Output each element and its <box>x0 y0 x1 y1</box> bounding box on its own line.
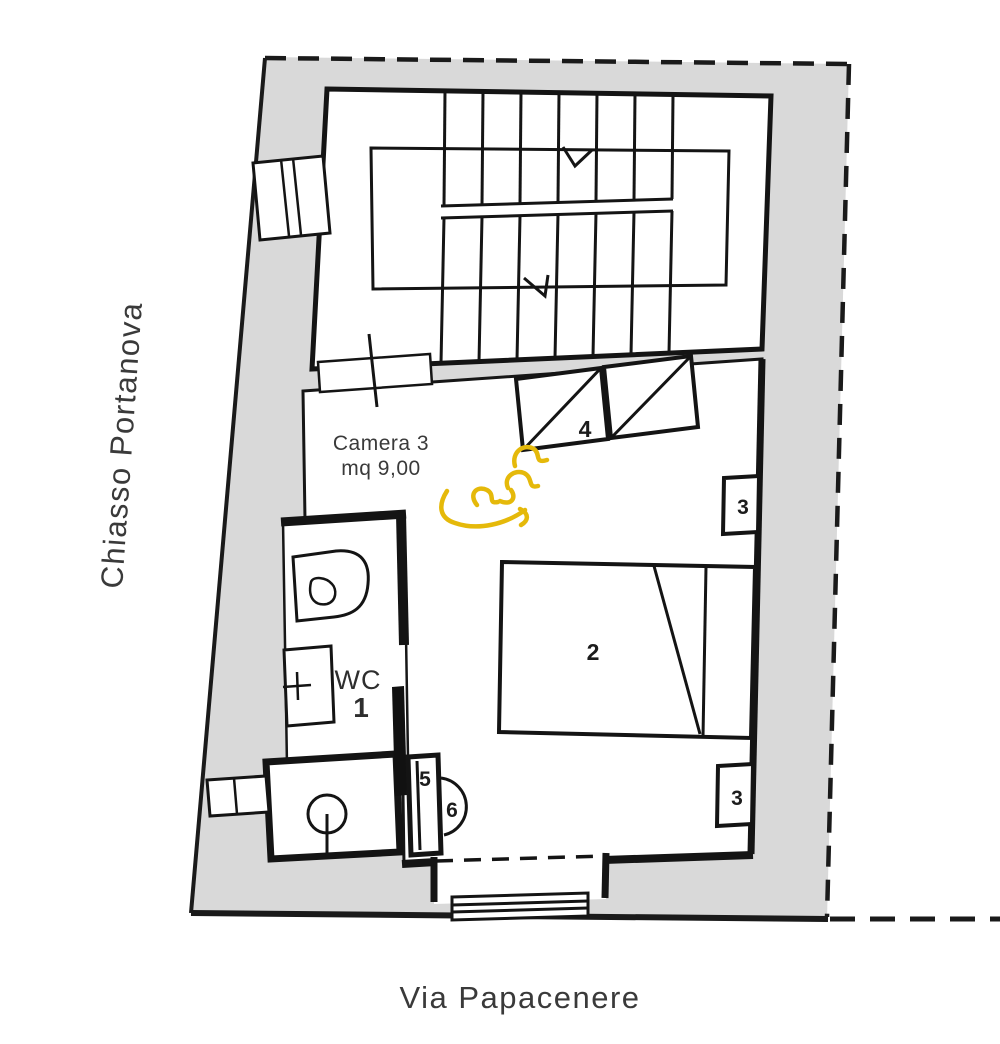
marker-3-top: 3 <box>737 496 749 519</box>
street-label-left: Chiasso Portanova <box>94 300 149 589</box>
window-bottom-left <box>207 776 269 816</box>
marker-1: 1 <box>353 692 369 723</box>
floor-plan-drawing: Camera 3 mq 9,00 WC 1 2 3 3 4 5 6 Chiass… <box>0 0 1000 1044</box>
wc-wall-right <box>401 514 404 645</box>
street-label-bottom: Via Papacenere <box>399 980 640 1015</box>
room-name-label: Camera 3 <box>333 432 429 455</box>
marker-4: 4 <box>579 416 592 442</box>
room-area-label: mq 9,00 <box>341 457 420 480</box>
marker-2: 2 <box>587 639 600 665</box>
staircase <box>312 89 771 369</box>
wc-label: WC <box>335 665 382 695</box>
entrance-jamb-right <box>605 853 606 898</box>
entrance-steps-icon <box>452 893 588 920</box>
marker-6: 6 <box>446 799 458 822</box>
window-top-left <box>253 156 330 240</box>
shower-room-outline <box>266 754 400 859</box>
bed-outline <box>499 562 755 738</box>
washbasin-icon <box>283 646 334 726</box>
floor-plan-canvas: Camera 3 mq 9,00 WC 1 2 3 3 4 5 6 Chiass… <box>0 0 1000 1044</box>
stairwell-outline <box>312 89 771 369</box>
marker-3-bottom: 3 <box>731 787 743 810</box>
camera3-wall-bottom-right <box>604 855 753 860</box>
marker-5: 5 <box>419 768 431 791</box>
toilet-icon <box>293 551 368 621</box>
wc-room <box>281 513 408 766</box>
double-bed <box>499 562 755 738</box>
shower-room <box>266 754 400 859</box>
entrance <box>434 852 606 920</box>
